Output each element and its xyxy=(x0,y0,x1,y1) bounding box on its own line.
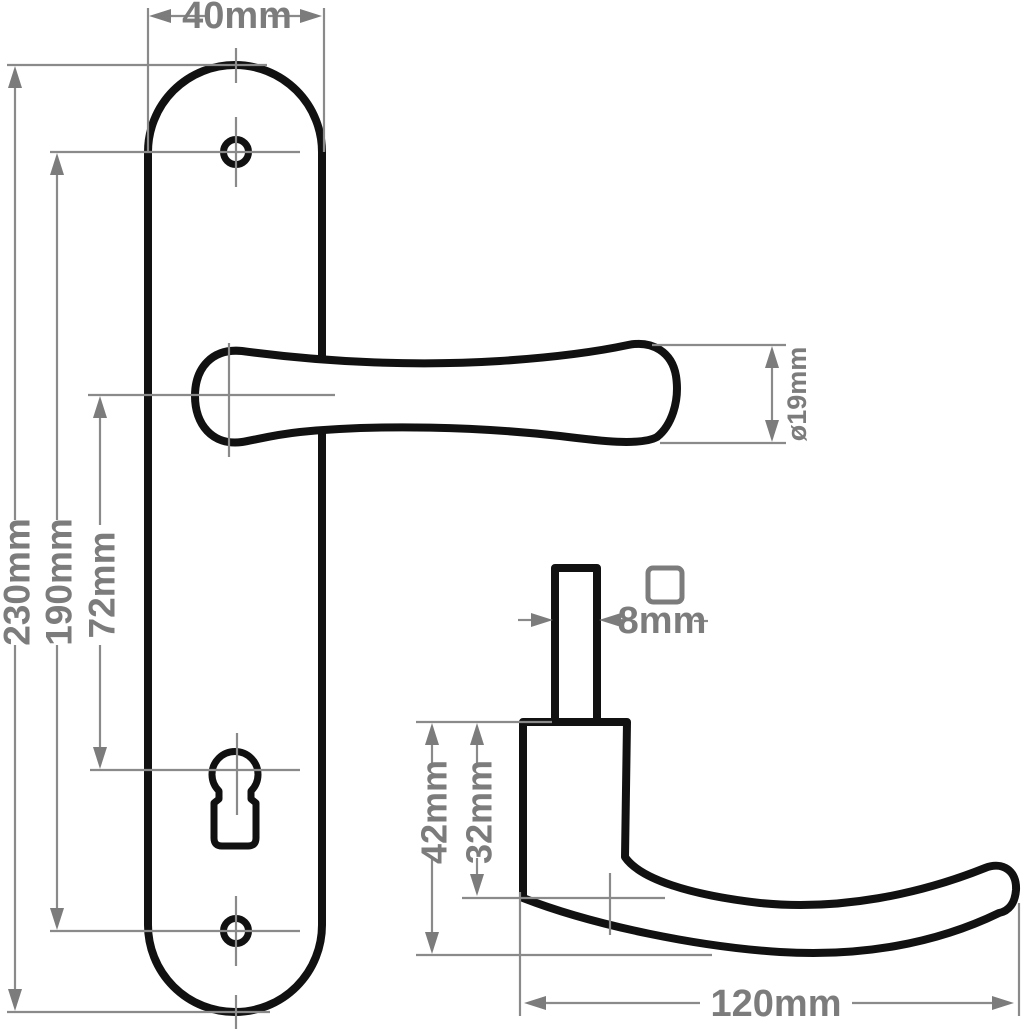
arrow-down-icon xyxy=(8,989,22,1011)
dim-label-lever-to-keyhole: 72mm xyxy=(82,532,123,639)
side-view xyxy=(523,568,1016,953)
arrow-right-icon xyxy=(531,613,553,627)
arrow-up-icon xyxy=(470,723,484,745)
lever-handle-side xyxy=(523,722,1016,953)
spindle xyxy=(555,568,597,724)
arrow-up-icon xyxy=(50,153,64,175)
backplate xyxy=(148,65,322,1012)
arrow-up-icon xyxy=(93,396,107,418)
arrow-up-icon xyxy=(8,66,22,88)
arrow-down-icon xyxy=(50,908,64,930)
arrow-down-icon xyxy=(425,932,439,954)
lever-handle-front xyxy=(195,344,677,443)
dim-label-lever-length: 120mm xyxy=(711,983,842,1025)
arrow-up-icon xyxy=(765,346,779,368)
arrow-right-icon xyxy=(300,9,322,23)
dim-label-plate-width: 40mm xyxy=(182,0,292,37)
dim-label-screw-centres: 190mm xyxy=(39,518,80,646)
keyhole xyxy=(212,751,258,846)
arrow-down-icon xyxy=(93,747,107,769)
arrow-up-icon xyxy=(425,723,439,745)
dim-spindle: 8mm xyxy=(518,568,708,642)
arrow-left-icon xyxy=(524,996,546,1010)
arrow-down-icon xyxy=(470,874,484,896)
dim-label-spindle: 8mm xyxy=(618,600,707,642)
dim-label-rose-depth: 42mm xyxy=(414,760,455,864)
square-outline-icon xyxy=(648,568,682,602)
dim-label-neck-depth: 32mm xyxy=(459,760,500,864)
technical-drawing-door-handle: 40mm 230mm 190mm xyxy=(0,0,1024,1029)
dim-label-lever-diameter: ø19mm xyxy=(782,347,812,442)
arrow-right-icon xyxy=(992,996,1014,1010)
dim-label-plate-height: 230mm xyxy=(0,518,38,646)
arrow-down-icon xyxy=(765,420,779,442)
arrow-left-icon xyxy=(149,9,171,23)
